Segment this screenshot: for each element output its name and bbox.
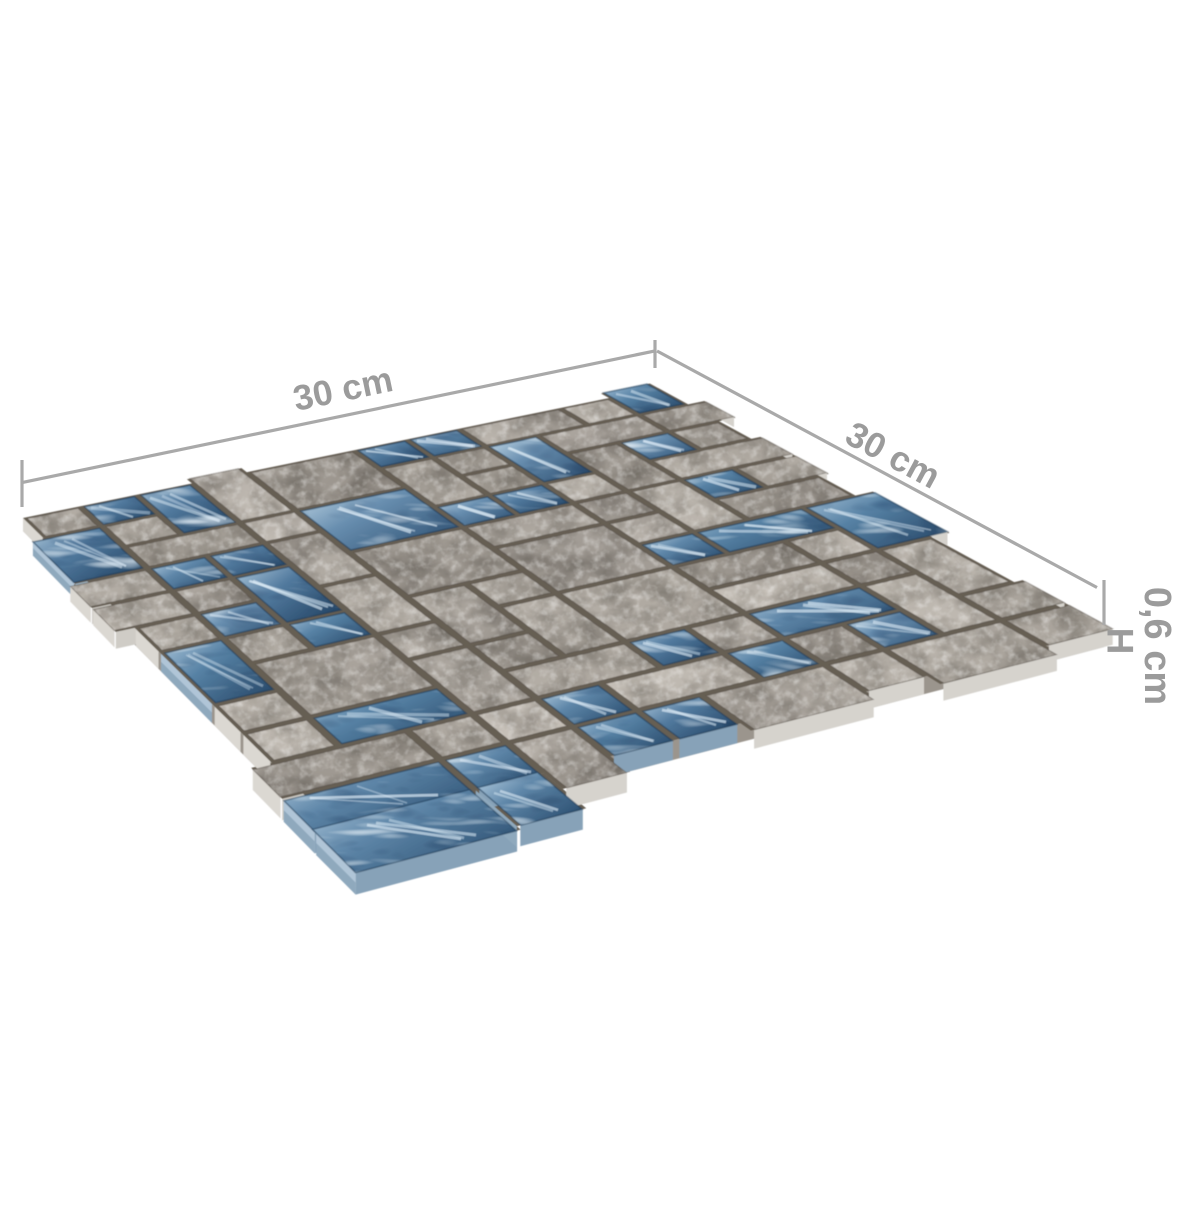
svg-text:H: H — [1100, 628, 1141, 655]
svg-text:0,6 cm: 0,6 cm — [1136, 587, 1178, 705]
